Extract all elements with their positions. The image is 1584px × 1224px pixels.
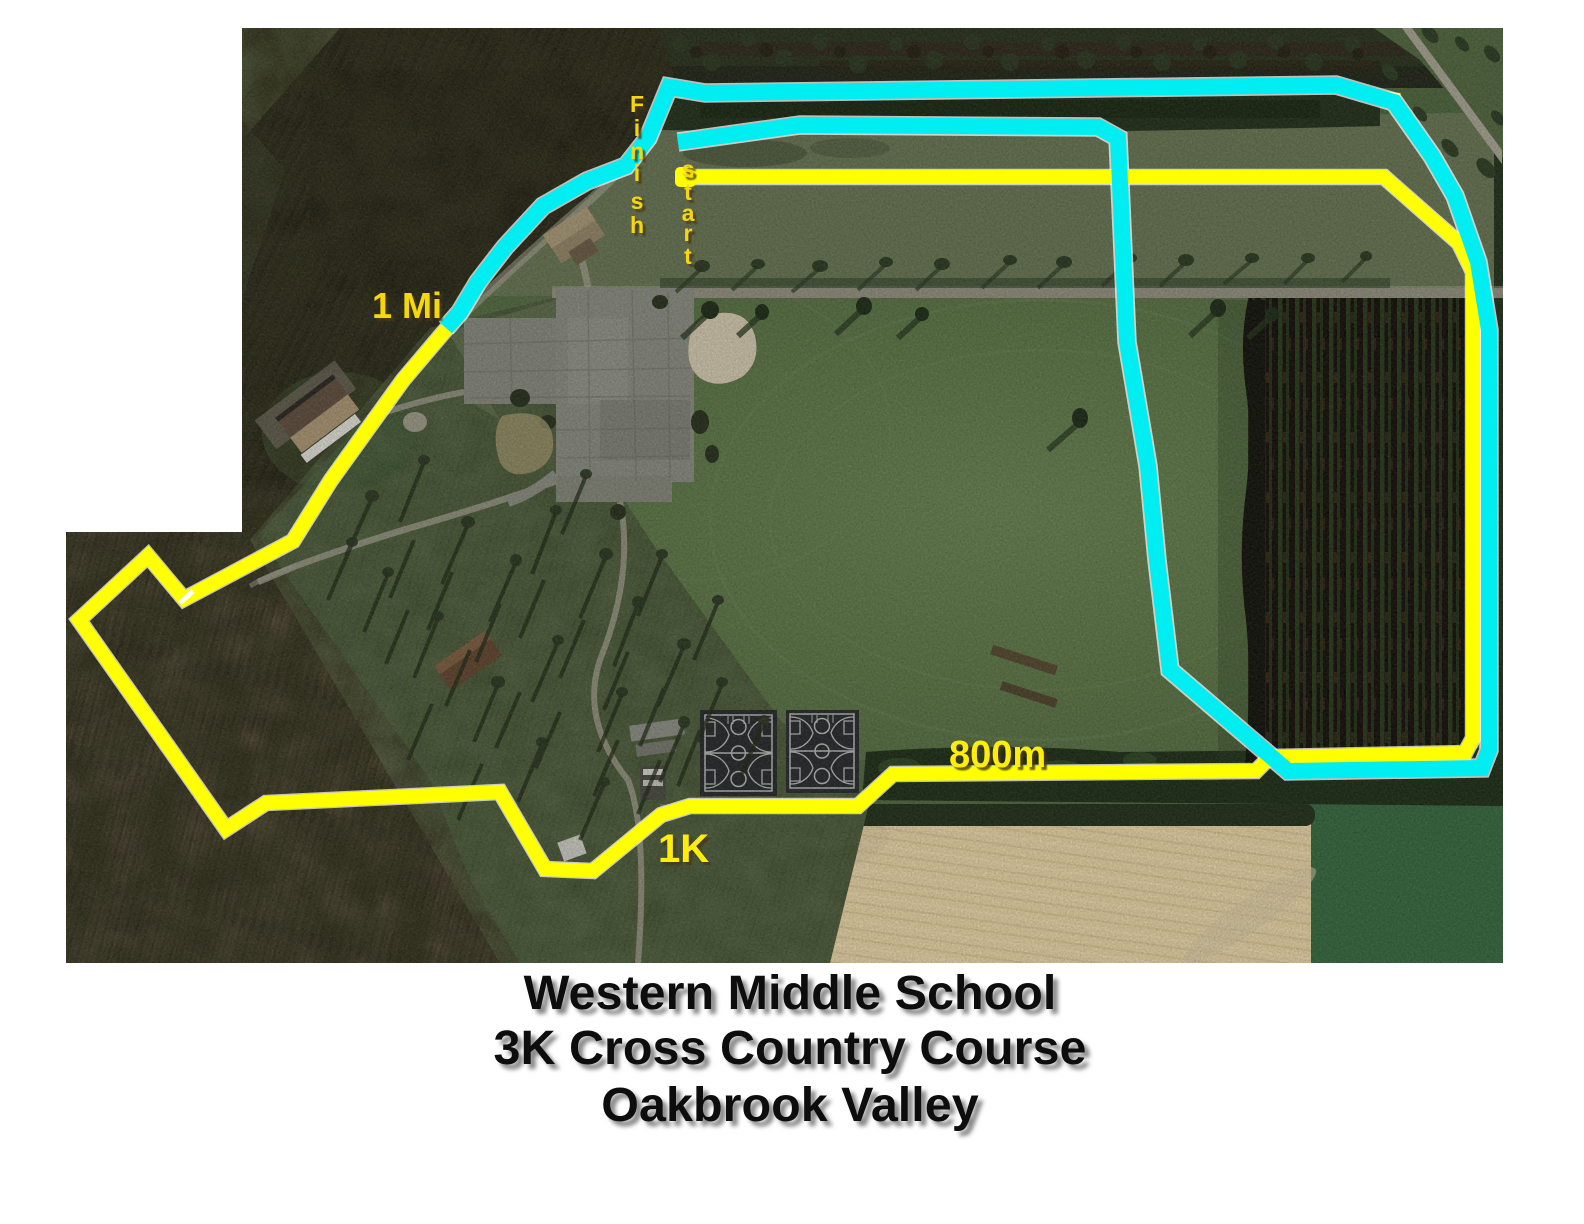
svg-text:3K Cross Country Course: 3K Cross Country Course: [494, 1021, 1087, 1075]
svg-text:800m: 800m: [949, 734, 1046, 776]
svg-text:1 Mi: 1 Mi: [372, 285, 442, 326]
svg-text:t: t: [684, 243, 692, 269]
svg-text:F: F: [630, 91, 644, 117]
svg-text:1K: 1K: [658, 827, 709, 871]
svg-text:Western Middle School: Western Middle School: [524, 966, 1057, 1020]
svg-text:h: h: [630, 212, 644, 238]
svg-text:i: i: [634, 160, 640, 186]
svg-text:s: s: [631, 188, 644, 214]
svg-text:Oakbrook Valley: Oakbrook Valley: [601, 1078, 978, 1132]
